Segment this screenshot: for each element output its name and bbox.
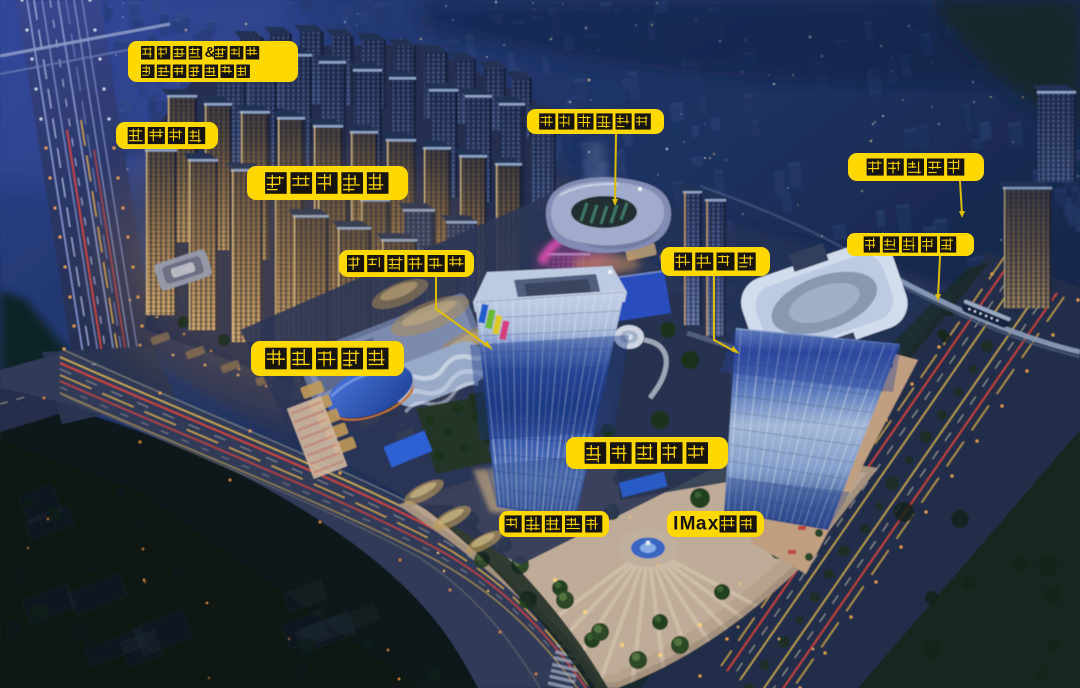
- svg-text:I: I: [673, 514, 678, 535]
- svg-text:a: a: [696, 514, 707, 535]
- svg-text:x: x: [708, 514, 719, 535]
- svg-text:M: M: [680, 514, 696, 535]
